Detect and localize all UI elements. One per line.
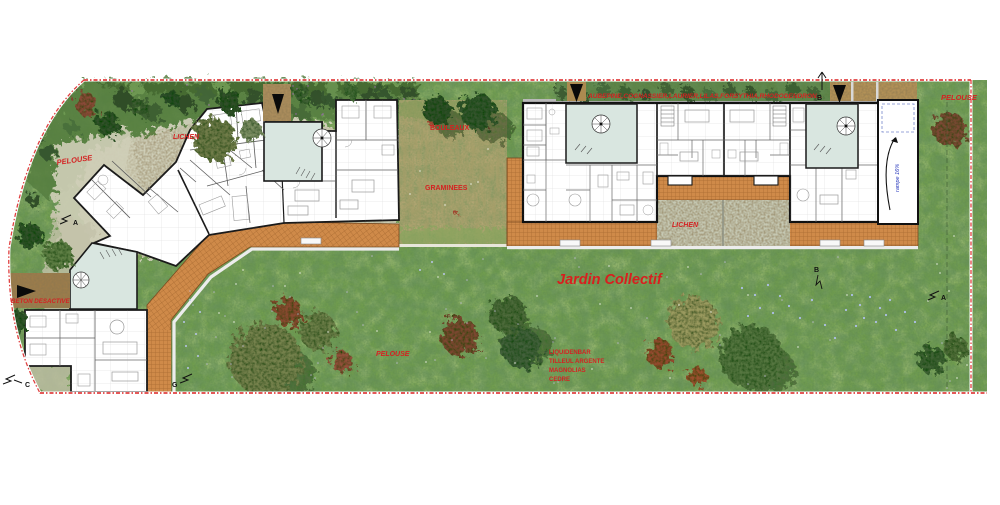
svg-text:CEDRE: CEDRE [549, 377, 570, 383]
svg-text:G: G [172, 382, 178, 389]
svg-text:B: B [814, 267, 819, 274]
svg-text:rampe 16%: rampe 16% [895, 164, 901, 192]
svg-text:A: A [73, 220, 78, 227]
svg-text:LICHEN: LICHEN [173, 134, 200, 141]
svg-text:PELOUSE: PELOUSE [376, 351, 410, 358]
svg-text:BOULEAUX: BOULEAUX [430, 125, 470, 132]
svg-text:A: A [941, 295, 946, 302]
svg-text:AUBEPINE,COGNASSIER,LAURIER,LI: AUBEPINE,COGNASSIER,LAURIER,LILAS,FORSYT… [587, 93, 822, 100]
svg-text:GRAMINEES: GRAMINEES [425, 185, 468, 192]
svg-text:LICHEN: LICHEN [672, 222, 699, 229]
svg-text:B: B [817, 95, 822, 102]
svg-text:Jardin Collectif: Jardin Collectif [557, 272, 664, 288]
svg-text:TILLEUL ARGENTE: TILLEUL ARGENTE [549, 359, 604, 365]
svg-text:MAGNOLIAS: MAGNOLIAS [549, 368, 586, 374]
svg-text:PELOUSE: PELOUSE [941, 93, 978, 102]
svg-text:C: C [25, 382, 30, 389]
svg-text:LIQUIDENBAR: LIQUIDENBAR [549, 350, 591, 356]
svg-text:BETON DESACTIVE: BETON DESACTIVE [11, 298, 71, 305]
